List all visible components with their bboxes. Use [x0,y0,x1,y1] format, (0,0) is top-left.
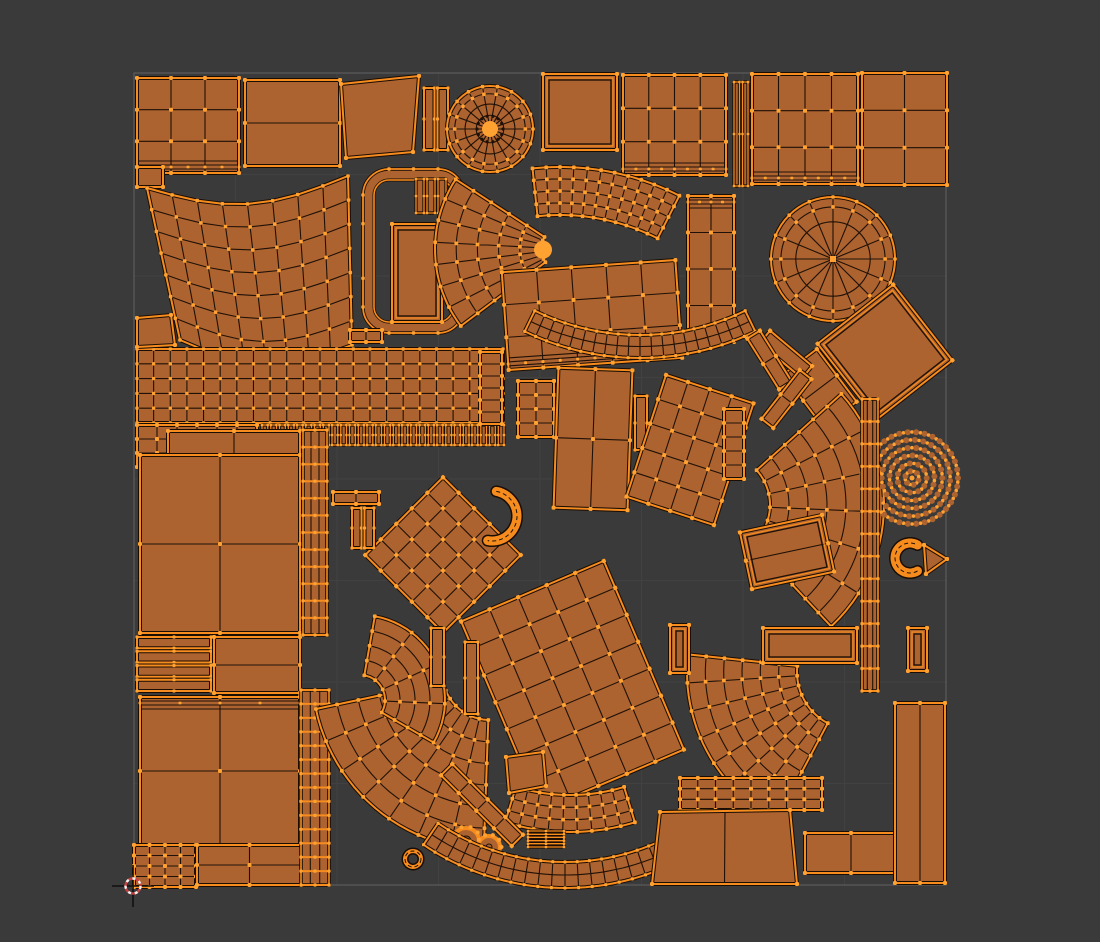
uv-island[interactable] [552,366,635,513]
uv-editor-viewport[interactable] [0,0,1100,942]
uv-island[interactable] [166,429,302,457]
uv-island[interactable] [135,347,504,424]
uv-island[interactable] [678,776,824,812]
uv-canvas[interactable] [0,0,1100,942]
uv-island[interactable] [138,695,302,847]
uv-island[interactable] [301,428,328,636]
uv-island[interactable] [348,328,384,344]
uv-island[interactable] [350,506,375,549]
uv-island[interactable] [541,72,619,152]
uv-island[interactable] [331,490,381,506]
uv-island[interactable] [516,379,556,439]
uv-island[interactable] [429,626,445,687]
uv-island[interactable] [445,85,535,173]
uv-island[interactable] [761,626,859,665]
uv-island[interactable] [504,750,548,795]
uv-island[interactable] [527,830,566,849]
uv-island[interactable] [135,313,177,349]
uv-island[interactable] [722,407,746,481]
uv-island[interactable] [860,397,879,692]
uv-island[interactable] [195,843,304,887]
uv-island[interactable] [860,71,949,187]
uv-island[interactable] [906,626,929,673]
uv-island[interactable] [339,74,421,160]
uv-island[interactable] [422,86,449,151]
uv-island[interactable] [135,635,212,692]
uv-island[interactable] [478,350,504,426]
uv-island[interactable] [212,635,302,695]
uv-island[interactable] [803,831,899,875]
uv-island[interactable] [621,73,728,177]
uv-island[interactable] [463,640,479,715]
uv-island[interactable] [893,701,947,885]
uv-island[interactable] [733,81,750,188]
uv-island[interactable] [650,808,799,886]
uv-island[interactable] [138,453,302,635]
uv-island[interactable] [135,76,241,175]
uv-island[interactable] [132,843,198,889]
uv-island[interactable] [135,165,165,189]
uv-island[interactable] [668,623,691,675]
uv-island[interactable] [750,72,860,186]
uv-island[interactable] [243,78,342,168]
